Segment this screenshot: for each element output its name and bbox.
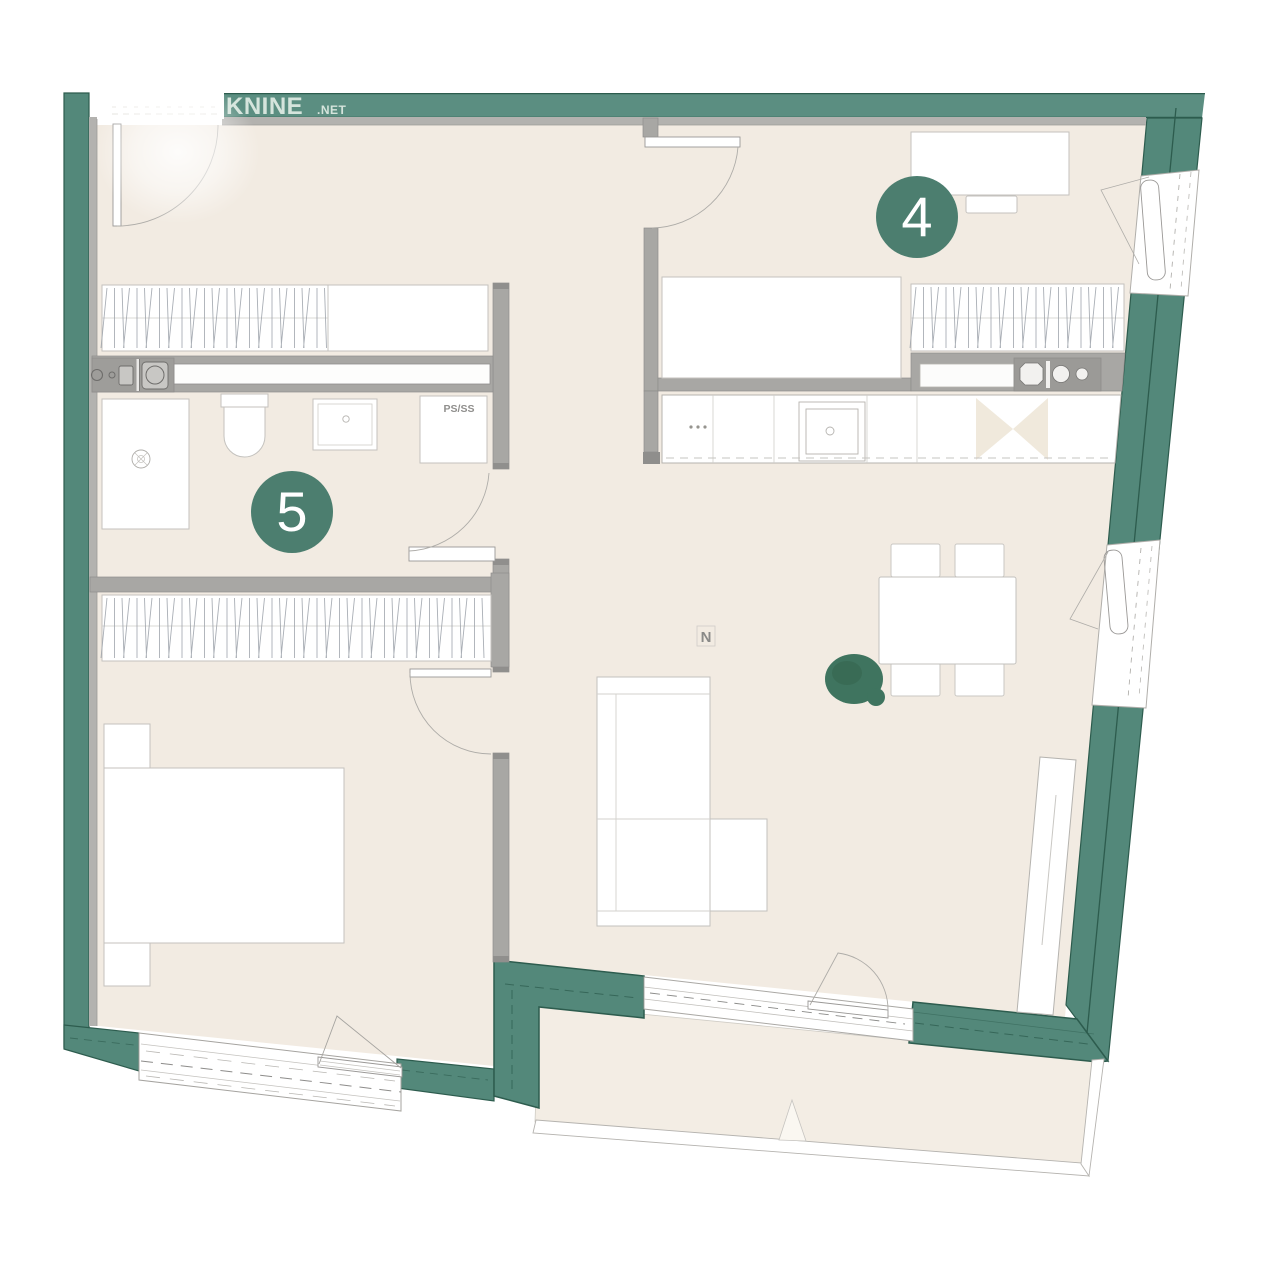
svg-text:4: 4: [901, 185, 932, 248]
svg-text:.NET: .NET: [317, 103, 347, 117]
svg-text:N: N: [701, 629, 712, 646]
svg-text:5: 5: [276, 480, 307, 543]
svg-text:PS/SS: PS/SS: [444, 403, 475, 415]
